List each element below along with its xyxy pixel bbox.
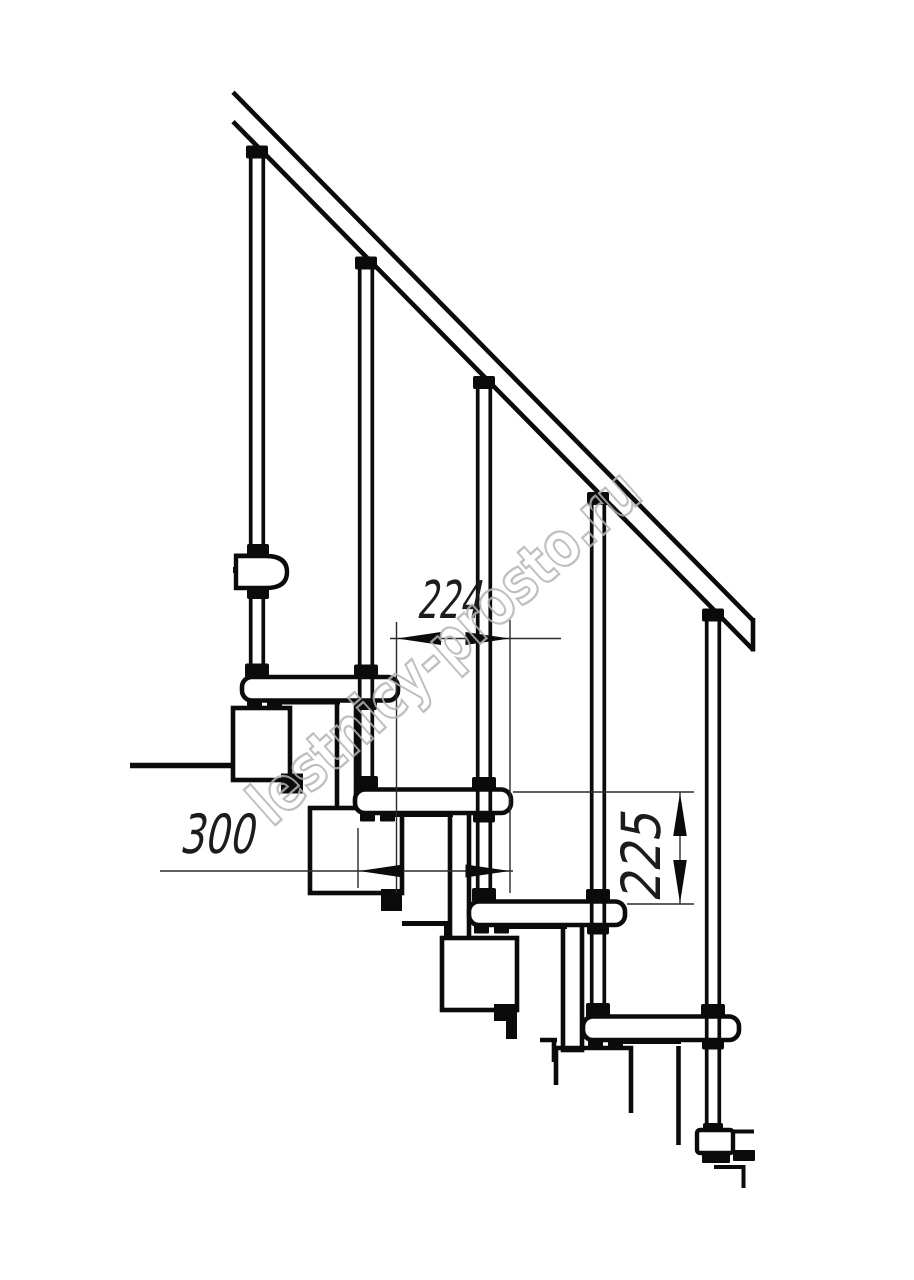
rail-end-fitting xyxy=(233,544,287,599)
tread-4 xyxy=(583,1017,739,1041)
dim-rise-label: 225 xyxy=(610,802,673,905)
module-tube-3 xyxy=(563,923,582,1050)
module-drop-3 xyxy=(506,1018,517,1039)
rail-end-cap xyxy=(236,556,287,588)
arrow-up-icon xyxy=(673,793,687,836)
floor-edge-line xyxy=(714,1167,744,1188)
module-hook-4 xyxy=(540,1040,557,1062)
dim-depth-label: 300 xyxy=(176,803,263,866)
baluster-5 xyxy=(707,621,720,1127)
tread-2 xyxy=(355,790,511,814)
staircase-drawing-canvas: 224 300 225 lestnicy-prosto.ru xyxy=(0,0,914,1280)
module-nub-2 xyxy=(381,889,402,911)
module-box-3 xyxy=(442,938,517,1010)
arrow-down-icon xyxy=(673,860,687,903)
arrow-right-icon xyxy=(466,865,510,878)
handrail-top-line xyxy=(233,92,753,620)
floor-foot xyxy=(697,1123,755,1188)
foot-block xyxy=(697,1130,733,1153)
module-box-4 xyxy=(556,1048,631,1113)
staircase-drawing: 224 300 225 lestnicy-prosto.ru xyxy=(0,0,914,1280)
tread-3 xyxy=(469,902,625,926)
